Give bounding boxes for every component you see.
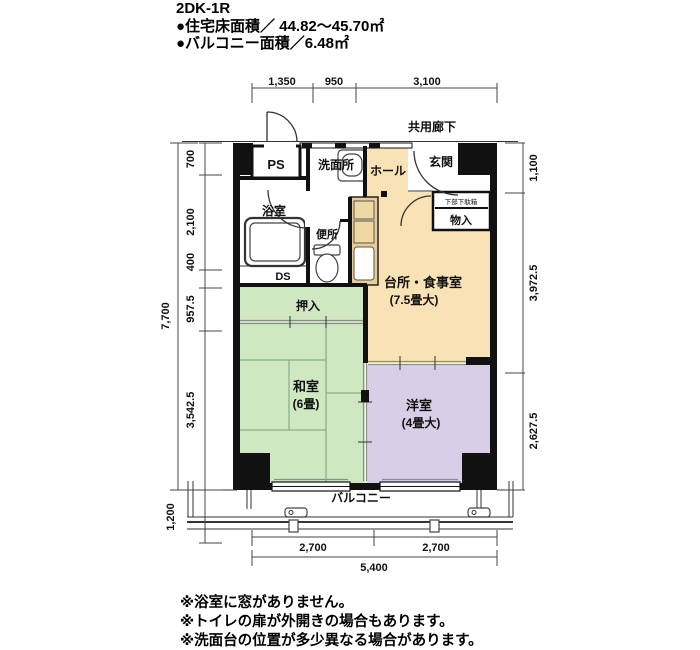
dim-left-total: 7,700 bbox=[160, 302, 172, 330]
dim-left-5: 3,542.5 bbox=[185, 392, 197, 429]
dimension-bottom: 2,700 2,700 5,400 bbox=[252, 530, 497, 574]
balcony-foot-right bbox=[468, 508, 490, 517]
japanese-room-label: 和室 bbox=[293, 379, 319, 394]
corridor-label: 共用廊下 bbox=[408, 119, 456, 134]
pillar-top-left bbox=[233, 143, 253, 175]
kitchen-counter bbox=[350, 197, 378, 285]
balcony-foot-left bbox=[285, 508, 307, 517]
ps-label: PS bbox=[267, 157, 285, 172]
dim-right-3: 2,627.5 bbox=[528, 413, 540, 450]
bathroom-label: 浴室 bbox=[262, 203, 286, 218]
washroom-label: 洗面所 bbox=[318, 157, 354, 172]
kitchen-label: 台所・食事室 bbox=[384, 275, 462, 290]
western-room-label: 洋室 bbox=[406, 398, 432, 413]
dim-top-1: 1,350 bbox=[268, 76, 296, 88]
shoebox-note-label: 下部下駄箱 bbox=[445, 197, 478, 206]
kitchen-sink bbox=[354, 247, 374, 280]
dim-left-4: 957.5 bbox=[185, 295, 197, 323]
bathtub bbox=[245, 218, 305, 266]
dim-right-2: 3,972.5 bbox=[528, 265, 540, 302]
closet-label: 押入 bbox=[296, 298, 320, 313]
floor-plan-drawing: 1,350 950 3,100 700 2,100 400 957.5 3,54… bbox=[0, 0, 700, 650]
note-1: ※浴室に窓がありません。 bbox=[180, 595, 353, 611]
room-entrance-floor bbox=[408, 146, 460, 192]
ps-door-arc bbox=[267, 112, 297, 142]
dimension-top: 1,350 950 3,100 bbox=[252, 76, 497, 103]
dimension-left: 700 2,100 400 957.5 3,542.5 7,700 1,200 bbox=[160, 143, 222, 543]
dim-top-3: 3,100 bbox=[413, 76, 441, 88]
dim-left-3: 400 bbox=[185, 253, 197, 271]
japanese-room-size-label: (6畳) bbox=[293, 397, 320, 411]
toilet-label: 便所 bbox=[316, 227, 338, 241]
balcony-clip-left bbox=[289, 520, 298, 532]
dim-bottom-1: 2,700 bbox=[299, 542, 327, 554]
dim-balcony-depth: 1,200 bbox=[165, 503, 177, 531]
dim-bottom-2: 2,700 bbox=[422, 542, 450, 554]
kitchen-size-label: (7.5畳大) bbox=[390, 292, 439, 307]
balcony-label: バルコニー bbox=[331, 491, 391, 505]
dim-left-1: 700 bbox=[185, 150, 197, 168]
ds-label: DS bbox=[275, 271, 290, 283]
western-room-size-label: (4畳大) bbox=[402, 415, 441, 430]
balcony-clip-right bbox=[430, 520, 439, 532]
bathroom-door-opening bbox=[305, 191, 311, 227]
hall-label: ホール bbox=[370, 164, 406, 178]
dimension-right: 1,100 3,972.5 2,627.5 bbox=[505, 143, 540, 490]
plan-notes: ※浴室に窓がありません。 ※トイレの扉が外開きの場合もあります。 ※洗面台の位置… bbox=[180, 594, 483, 650]
toilet-bowl bbox=[314, 245, 340, 282]
floor-plan-page: 2DK-1R ●住宅床面積／ 44.82〜45.70㎡ ●バルコニー面積／6.4… bbox=[0, 0, 700, 650]
dim-top-2: 950 bbox=[325, 76, 343, 88]
dim-left-2: 2,100 bbox=[185, 208, 197, 236]
entrance-label: 玄関 bbox=[429, 154, 453, 169]
dim-right-1: 1,100 bbox=[528, 154, 540, 182]
note-2: ※トイレの扉が外開きの場合もあります。 bbox=[180, 614, 454, 630]
note-3: ※洗面台の位置が多少異なる場合があります。 bbox=[180, 633, 483, 649]
storage-label: 物入 bbox=[450, 213, 472, 227]
dim-bottom-total: 5,400 bbox=[360, 562, 388, 574]
